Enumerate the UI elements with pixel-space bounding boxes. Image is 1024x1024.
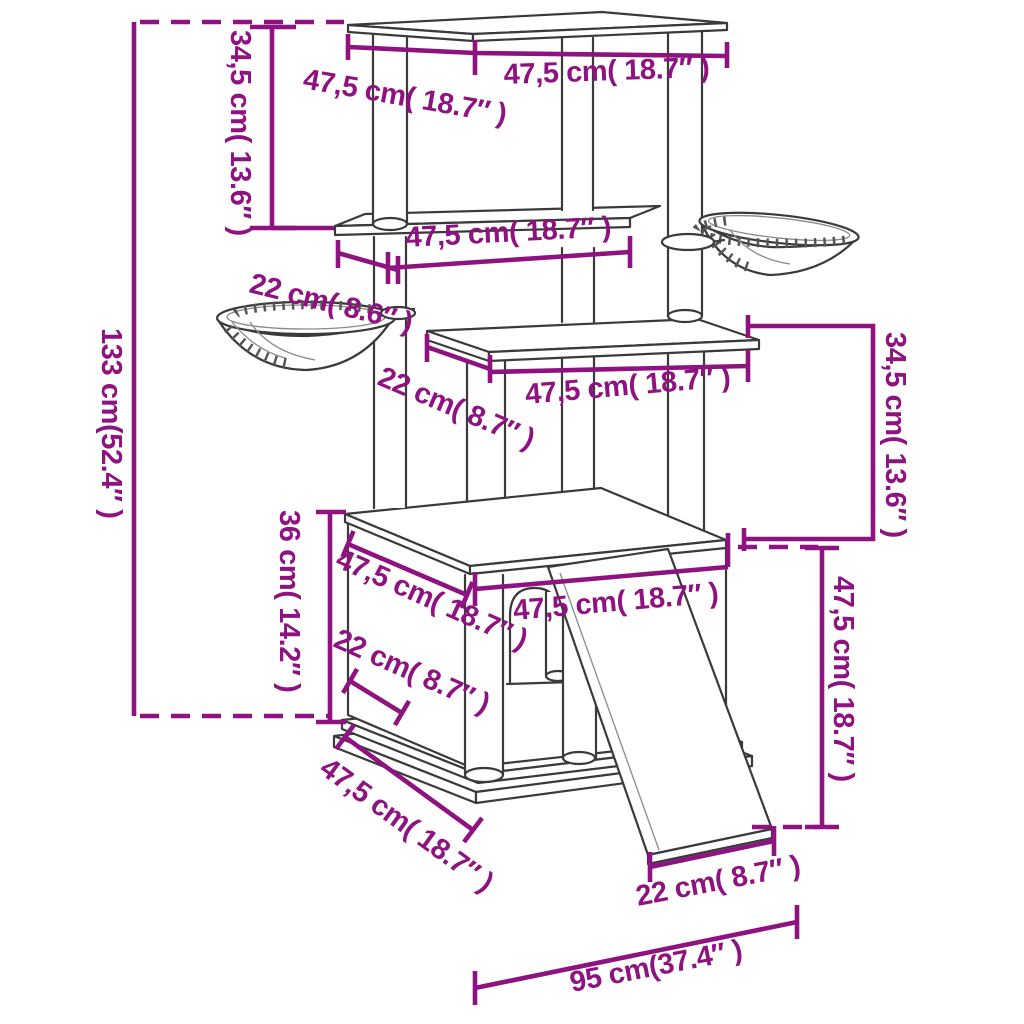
third-platform <box>427 319 759 361</box>
label-footprint-width: 95 cm(37.4″ ) <box>567 934 745 999</box>
label-ramp-height: 47,5 cm( 18.7″ ) <box>827 576 859 782</box>
label-house-height: 36 cm( 14.2″ ) <box>273 510 305 692</box>
label-top-section-height: 34,5 cm( 13.6″ ) <box>224 30 256 236</box>
diagram-canvas: 133 cm(52.4″ ) 34,5 cm( 13.6″ ) 47,5 cm(… <box>0 0 1024 1024</box>
right-basket-ring <box>662 234 714 250</box>
label-total-height: 133 cm(52.4″ ) <box>95 328 127 518</box>
label-middle-section-height: 34,5 cm( 13.6″ ) <box>879 332 911 538</box>
cat-tree-dimension-diagram: 133 cm(52.4″ ) 34,5 cm( 13.6″ ) 47,5 cm(… <box>0 0 1024 1024</box>
